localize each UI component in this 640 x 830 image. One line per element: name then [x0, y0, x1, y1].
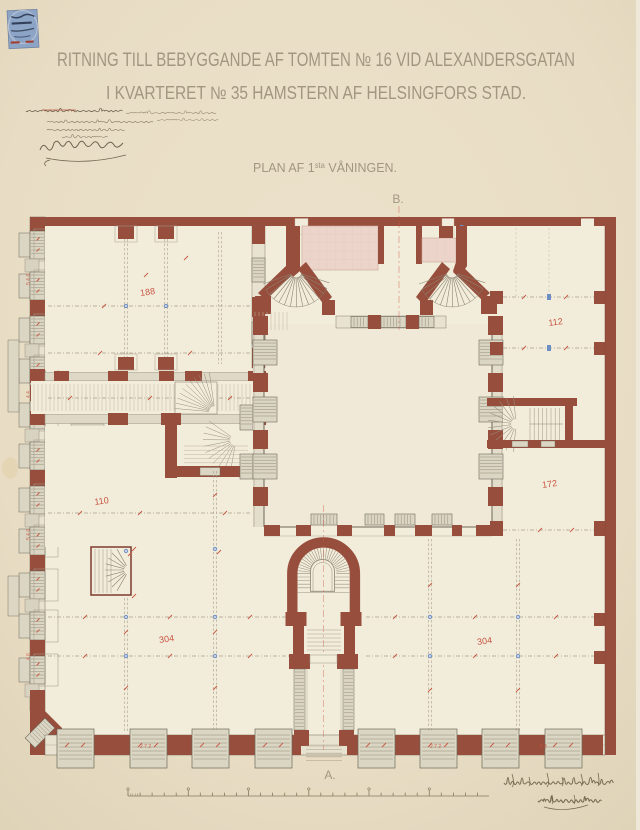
svg-text:5 4: 5 4: [540, 744, 547, 750]
svg-text:4 4: 4 4: [26, 391, 32, 398]
svg-text:2 7 2: 2 7 2: [430, 744, 441, 750]
svg-text:A.: A.: [324, 768, 335, 782]
svg-text:RITNING TILL BEBYGGANDE AF TOM: RITNING TILL BEBYGGANDE AF TOMTEN № 16 V…: [57, 50, 575, 71]
svg-text:112: 112: [548, 316, 564, 328]
svg-text:304: 304: [158, 633, 174, 645]
svg-text:PLAN AF 1sta VÅNINGEN.: PLAN AF 1sta VÅNINGEN.: [253, 160, 397, 175]
svg-text:5 4 6: 5 4 6: [26, 529, 32, 540]
svg-text:110: 110: [94, 495, 110, 507]
svg-text:2 7 2: 2 7 2: [140, 744, 151, 750]
svg-text:B.: B.: [392, 192, 403, 206]
svg-text:172: 172: [541, 478, 557, 490]
svg-text:304: 304: [476, 635, 492, 647]
svg-text:4 6: 4 6: [26, 653, 32, 660]
svg-text:I KVARTERET № 35 HAMSTERN AF H: I KVARTERET № 35 HAMSTERN AF HELSINGFORS…: [106, 83, 526, 103]
svg-text:188: 188: [139, 286, 155, 298]
svg-text:5 4 6: 5 4 6: [26, 274, 32, 285]
